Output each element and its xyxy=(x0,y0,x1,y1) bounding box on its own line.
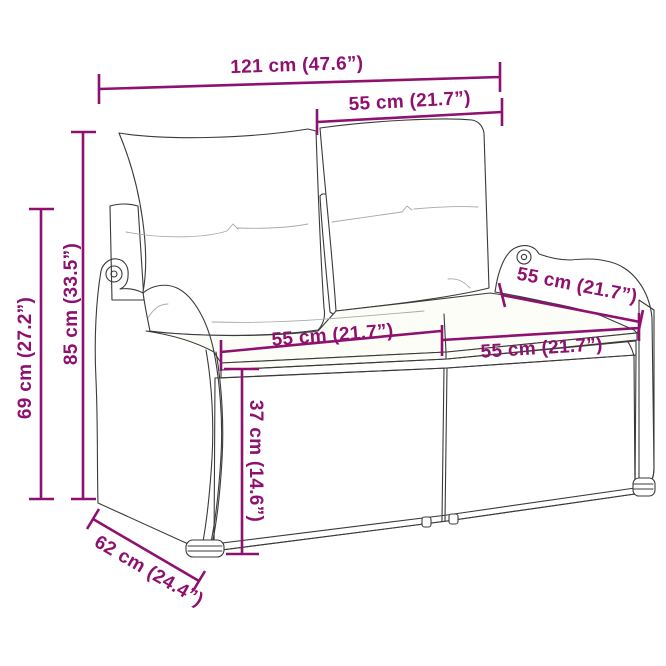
left-arm-front-edging xyxy=(202,350,223,548)
base-panel-seam xyxy=(442,368,447,521)
bench-dimension-diagram: 121 cm (47.6”) 55 cm (21.7”) 85 cm (33.5… xyxy=(0,0,666,666)
dim-overall-height: 85 cm (33.5”) xyxy=(61,132,96,499)
dim-armrest-height: 69 cm (27.2”) xyxy=(15,209,54,499)
foot-left xyxy=(186,540,224,557)
dim-overall-depth: 62 cm (24.4”) xyxy=(87,509,207,611)
left-arm-curl xyxy=(106,266,122,282)
right-arm-curl-inner xyxy=(521,254,526,259)
foot-right xyxy=(633,478,655,496)
foot-center-right xyxy=(449,514,458,524)
dim-overall-height-label: 85 cm (33.5”) xyxy=(61,243,82,365)
left-back-post xyxy=(110,204,144,300)
dim-seat-height-label: 37 cm (14.6”) xyxy=(245,400,266,522)
foot-center-left xyxy=(422,517,431,527)
diagram-canvas: 121 cm (47.6”) 55 cm (21.7”) 85 cm (33.5… xyxy=(0,0,666,666)
dim-armrest-height-label: 69 cm (27.2”) xyxy=(15,297,36,419)
dim-backrest-width-label: 55 cm (21.7”) xyxy=(348,88,471,115)
right-arm-curl xyxy=(517,250,531,264)
dim-seat-height: 37 cm (14.6”) xyxy=(224,369,266,554)
dim-overall-width-label: 121 cm (47.6”) xyxy=(230,53,364,78)
